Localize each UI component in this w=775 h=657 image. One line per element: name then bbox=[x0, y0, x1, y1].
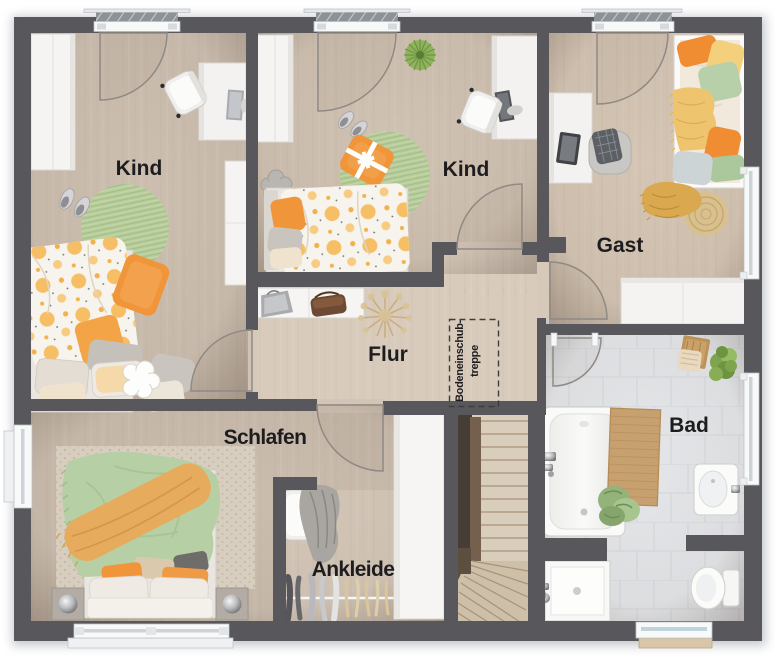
svg-text:Bad: Bad bbox=[669, 414, 709, 437]
svg-text:Kind: Kind bbox=[443, 158, 490, 181]
svg-text:Ankleide: Ankleide bbox=[312, 558, 395, 581]
svg-text:Flur: Flur bbox=[368, 343, 408, 366]
svg-text:Kind: Kind bbox=[116, 157, 163, 180]
svg-text:Schlafen: Schlafen bbox=[224, 426, 307, 449]
svg-text:Gast: Gast bbox=[597, 234, 644, 257]
